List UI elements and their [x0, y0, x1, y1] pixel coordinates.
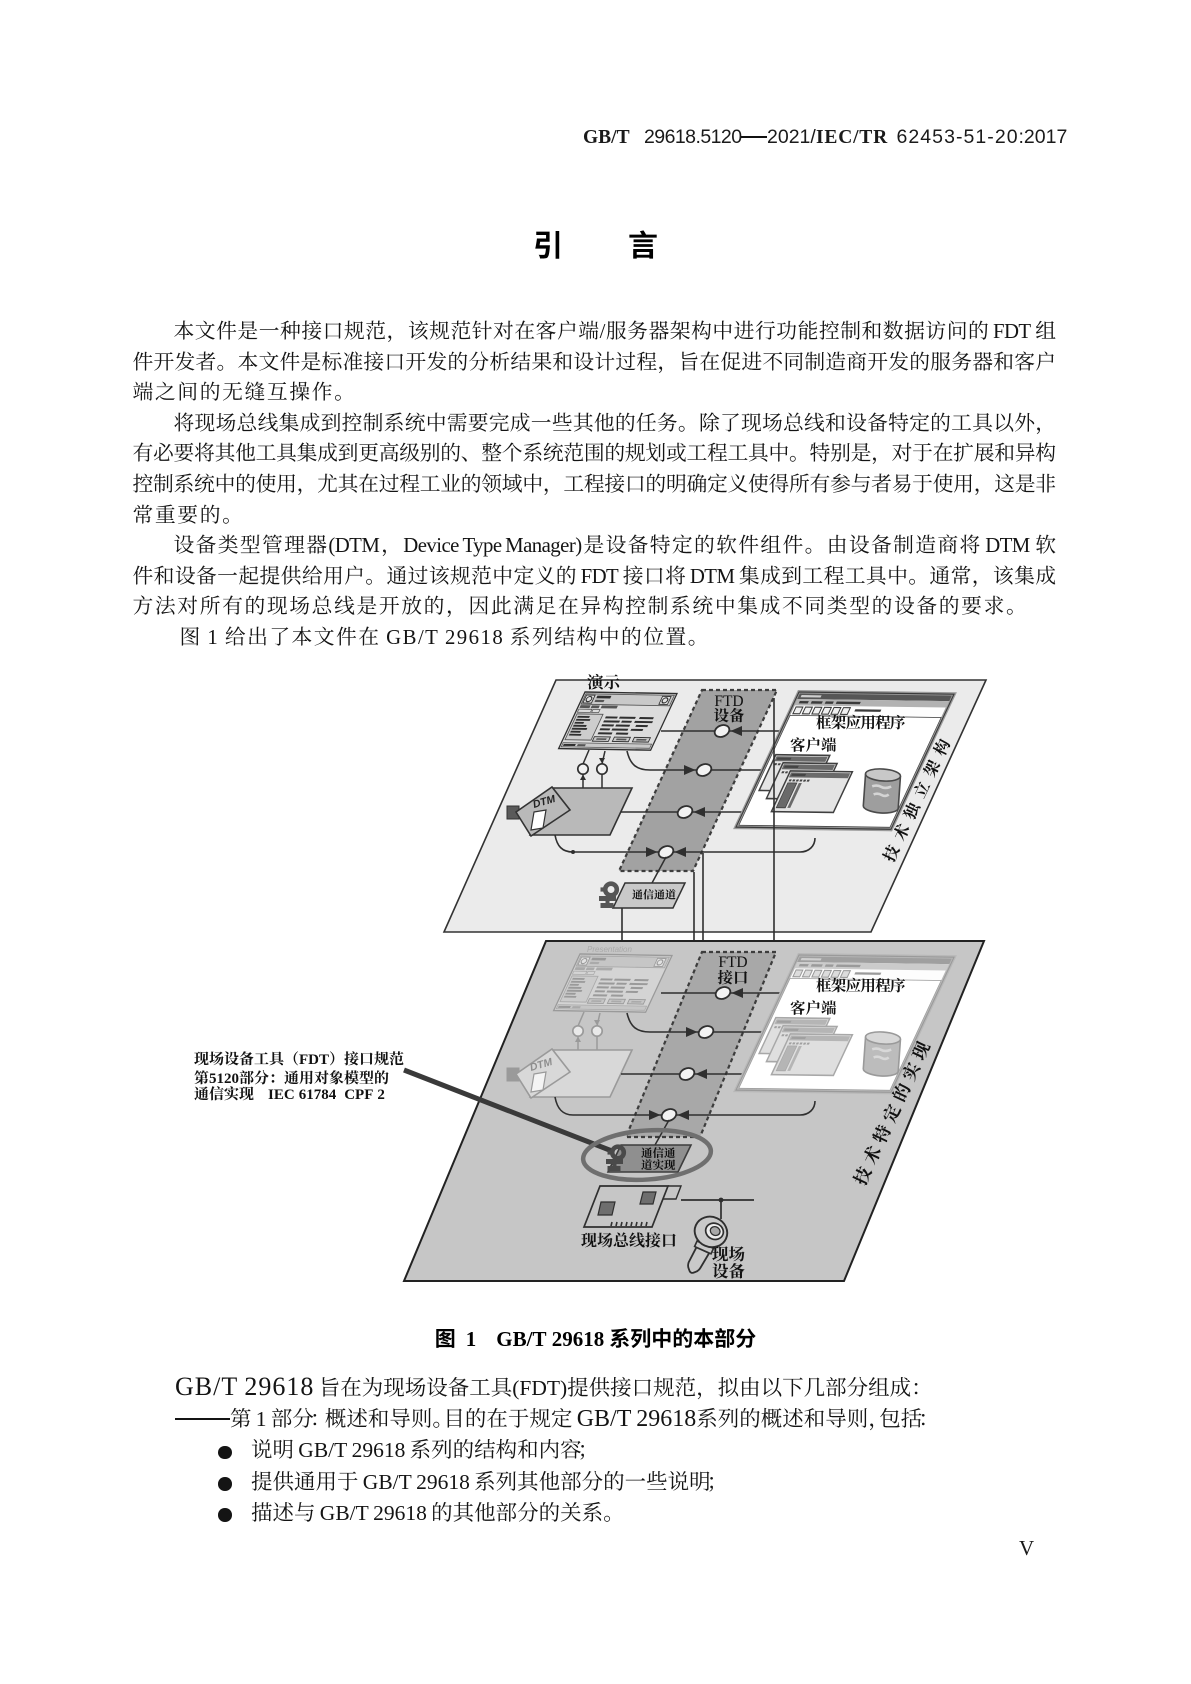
svg-text:现场总线接口: 现场总线接口 — [581, 1228, 677, 1251]
svg-text:演示: 演示 — [587, 669, 622, 693]
svg-text:框架应用程序: 框架应用程序 — [816, 974, 906, 996]
svg-text:设备: 设备 — [712, 1258, 746, 1282]
svg-text:现场设备工具（FDT）接口规范: 现场设备工具（FDT）接口规范 — [194, 1048, 404, 1069]
svg-text:客户端: 客户端 — [790, 997, 837, 1019]
svg-text:Presentation: Presentation — [587, 945, 632, 954]
svg-text:通信实现IEC61784CPF2: 通信实现IEC61784CPF2 — [194, 1083, 385, 1104]
svg-text:框架应用程序: 框架应用程序 — [816, 711, 906, 733]
svg-text:通信通道: 通信通道 — [632, 887, 676, 903]
svg-text:客户端: 客户端 — [790, 734, 837, 756]
svg-text:接口: 接口 — [717, 966, 748, 988]
svg-text:设备: 设备 — [713, 704, 745, 726]
svg-text:道实现: 道实现 — [641, 1157, 676, 1173]
